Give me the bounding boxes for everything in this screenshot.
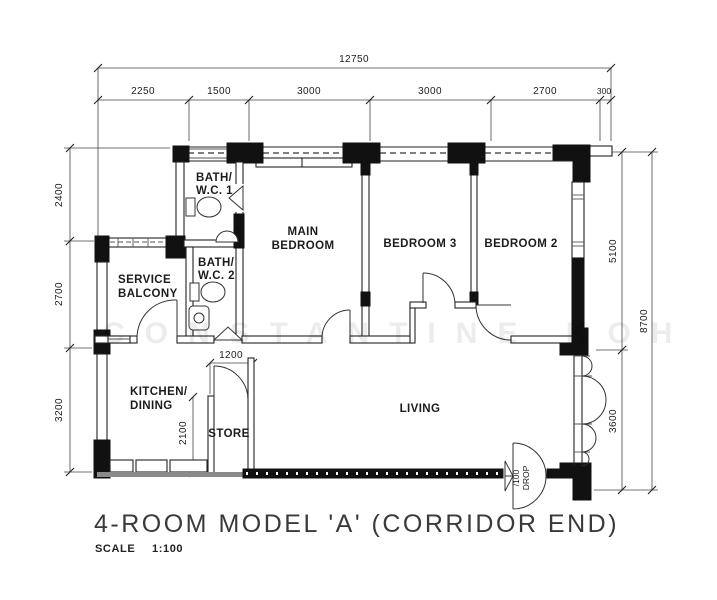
drawing-title: 4-ROOM MODEL 'A' (CORRIDOR END) (94, 510, 619, 538)
scale-value: 1:100 (152, 543, 183, 555)
room-label-store: STORE (208, 428, 249, 440)
room-label-main-bedroom: MAIN (288, 226, 319, 238)
floor-plan-page: 12750 2250 1500 3000 3000 2700 300 2400 … (0, 0, 717, 600)
dim-right-0: 5100 (608, 239, 619, 263)
dim-top-4: 2700 (533, 86, 557, 97)
toilet-icon (186, 197, 221, 217)
room-label-bedroom3: BEDROOM 3 (383, 238, 456, 250)
store-door-swing (214, 366, 248, 400)
dim-overall-width: 12750 (339, 54, 369, 65)
room-label-bath2-line2: W.C. 2 (198, 270, 235, 282)
room-label-kitchen: KITCHEN/ (130, 386, 188, 398)
room-label-living: LIVING (400, 403, 441, 415)
dim-top-2: 3000 (297, 86, 321, 97)
dim-store-depth: 2100 (178, 421, 189, 445)
dim-top-0: 2250 (131, 86, 155, 97)
dim-left-0: 2400 (54, 183, 65, 207)
dim-top-3: 3000 (418, 86, 442, 97)
room-label-bath2: BATH/ (198, 257, 235, 269)
dim-left-1: 2700 (54, 282, 65, 306)
room-label-kitchen-line2: DINING (130, 400, 173, 412)
living-casement-windows (574, 354, 606, 466)
dim-left-2: 3200 (54, 398, 65, 422)
room-label-service-balcony: SERVICE (118, 274, 171, 286)
title-block: 4-ROOM MODEL 'A' (CORRIDOR END) SCALE 1:… (94, 510, 619, 555)
room-label-service-balcony-line2: BALCONY (118, 288, 178, 300)
room-label-main-bedroom-line2: BEDROOM (272, 240, 335, 252)
scale-label: SCALE (95, 543, 135, 555)
party-wall-stub (587, 146, 612, 156)
room-label-bath1: BATH/ (196, 172, 233, 184)
floor-plan-canvas: 12750 2250 1500 3000 3000 2700 300 2400 … (0, 0, 717, 600)
dim-store-width: 1200 (219, 350, 243, 361)
toilet-icon (190, 282, 225, 302)
room-label-bedroom2: BEDROOM 2 (484, 238, 557, 250)
room-label-bath1-line2: W.C. 1 (196, 185, 233, 197)
dim-right-1: 3600 (608, 409, 619, 433)
dim-top-1: 1500 (207, 86, 231, 97)
watermark-text: CONSTANTINE KOH (103, 317, 692, 350)
dim-top-5: 300 (597, 86, 611, 96)
entrance-drop-note: /100 (511, 469, 521, 486)
bedroom3-door-swing (423, 273, 455, 305)
entrance-drop-note-line2: DROP (521, 465, 531, 490)
